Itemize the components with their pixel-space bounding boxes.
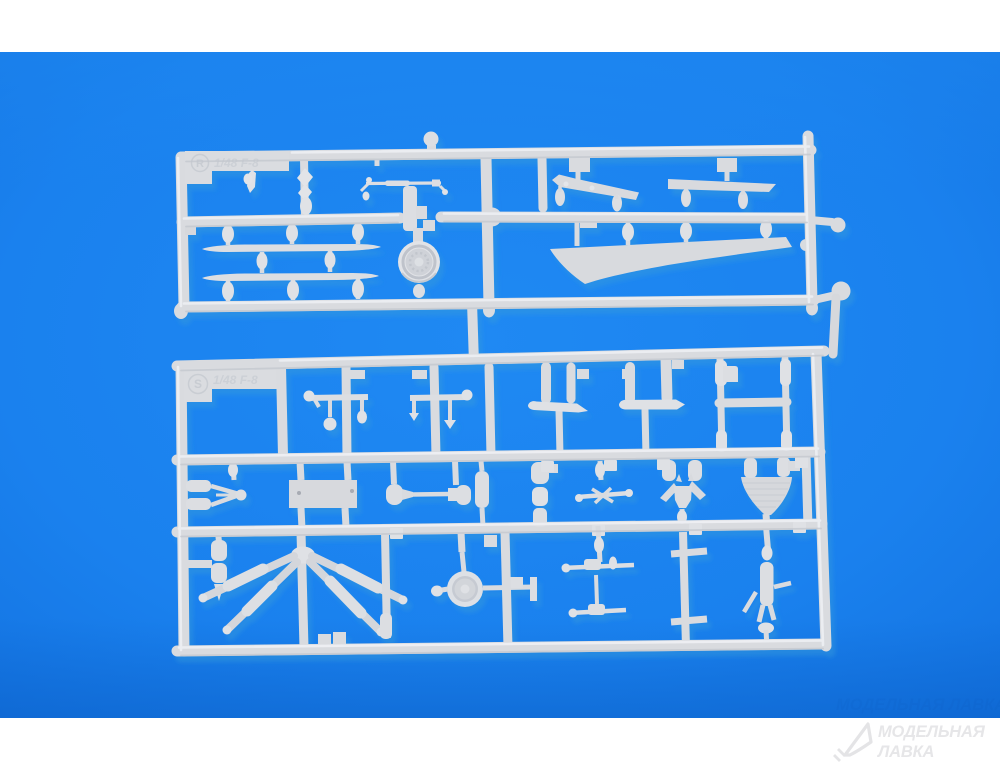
svg-text:МОДЕЛЬНАЯ ЛАВКА: МОДЕЛЬНАЯ ЛАВКА [836, 696, 1000, 714]
svg-text:1/48 F-8: 1/48 F-8 [214, 156, 259, 170]
svg-text:ЛАВКА: ЛАВКА [877, 743, 934, 761]
svg-text:R: R [196, 158, 204, 170]
svg-text:S: S [194, 377, 202, 391]
svg-text:1/48 F-8: 1/48 F-8 [213, 373, 258, 387]
svg-text:МОДЕЛЬНАЯ: МОДЕЛЬНАЯ [878, 723, 986, 741]
